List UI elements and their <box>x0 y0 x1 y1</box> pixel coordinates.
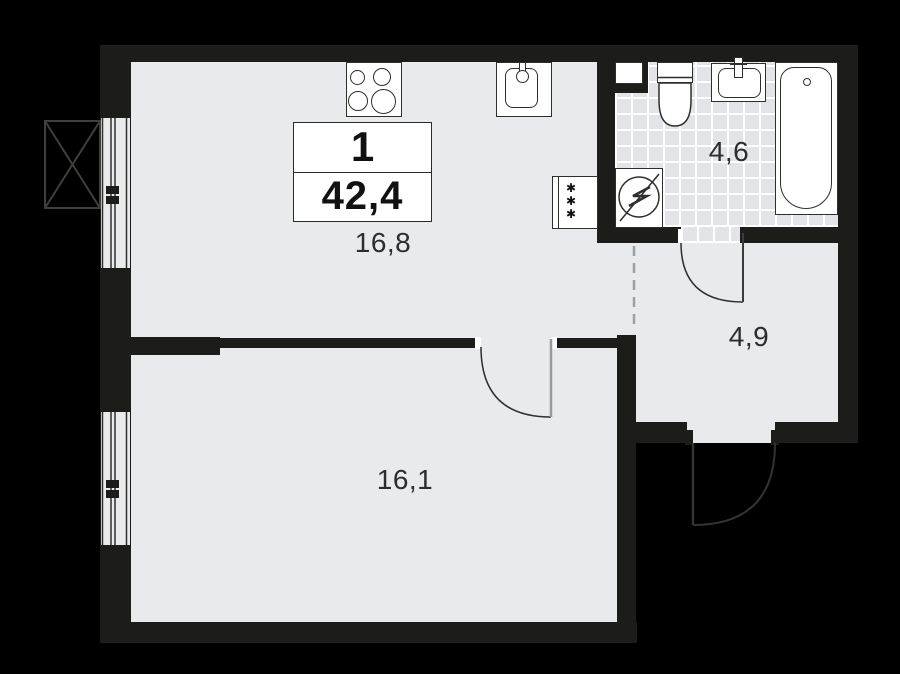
unit-rooms-count: 1 <box>294 123 431 173</box>
bathtub-drain <box>803 78 811 86</box>
window-upper <box>101 118 130 268</box>
bathroom-area-label: 4,6 <box>709 136 749 168</box>
wall-divider-thin-right <box>551 338 617 348</box>
shaft-x-icon <box>45 121 100 208</box>
toilet-tank <box>657 62 693 83</box>
freezer-marks: ✱ ✱ ✱ <box>560 182 582 221</box>
bedroom-door-jamb-right <box>551 337 557 349</box>
wall-bathroom-bottom-left <box>597 227 681 243</box>
washing-machine-icon <box>615 168 663 228</box>
wall-right <box>838 45 858 443</box>
bedroom-door-jamb-left <box>475 337 481 349</box>
wall-bedroom-right <box>617 335 636 643</box>
kitchen-living-area-label: 16,8 <box>355 227 412 259</box>
entry-door-arc <box>693 443 775 525</box>
kitchen-sink-faucet <box>516 70 529 83</box>
stove-burner-small <box>350 70 365 85</box>
window-lower <box>101 412 130 545</box>
wall-bathroom-left <box>597 62 615 243</box>
wall-bathroom-bottom-right <box>740 227 858 243</box>
stove-burner-medium-1 <box>373 68 391 86</box>
floor-plan: ✱ ✱ ✱ <box>0 0 900 674</box>
stove-burner-large <box>371 89 396 114</box>
vent-shaft <box>615 62 643 84</box>
unit-total-area: 42,4 <box>294 173 431 222</box>
bedroom-area-label: 16,1 <box>377 464 434 496</box>
bathtub-basin <box>780 67 832 209</box>
wall-top <box>100 45 858 62</box>
stove-burner-medium-2 <box>348 91 368 111</box>
wall-divider-thin-left <box>220 338 475 348</box>
bathroom-door-jamb-left <box>678 229 681 243</box>
entry-door-jamb-left <box>685 430 693 445</box>
hallway-area-label: 4,9 <box>729 321 769 353</box>
wall-divider-thick <box>131 337 220 355</box>
bathroom-door-threshold <box>681 227 740 243</box>
wall-bottom <box>100 622 637 643</box>
vent-shaft-wall-right <box>643 62 648 93</box>
bathroom-sink-faucet <box>734 57 743 78</box>
entry-door-jamb-right <box>771 430 779 445</box>
wall-entry-right <box>775 422 858 443</box>
unit-info-box: 1 42,4 <box>293 122 432 222</box>
